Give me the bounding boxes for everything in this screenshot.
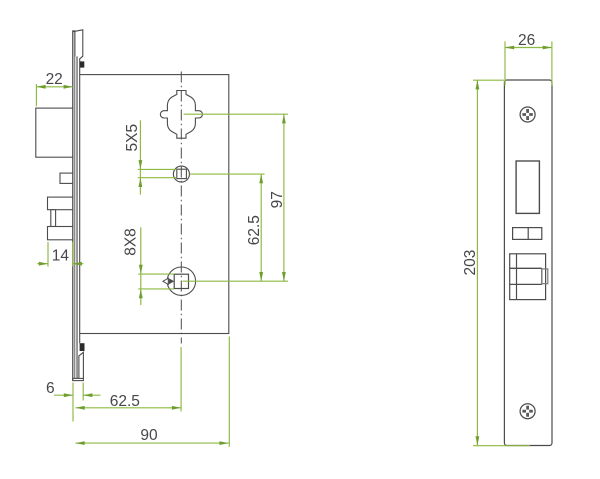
svg-text:62.5: 62.5: [110, 393, 140, 410]
svg-text:26: 26: [518, 32, 535, 49]
svg-text:6: 6: [46, 380, 55, 397]
svg-text:203: 203: [462, 250, 479, 276]
svg-text:14: 14: [52, 248, 70, 265]
svg-text:90: 90: [140, 427, 158, 444]
svg-text:62.5: 62.5: [246, 215, 263, 245]
svg-text:97: 97: [269, 191, 286, 208]
svg-text:22: 22: [46, 71, 63, 88]
svg-text:8X8: 8X8: [123, 228, 140, 256]
svg-text:5X5: 5X5: [124, 124, 141, 152]
